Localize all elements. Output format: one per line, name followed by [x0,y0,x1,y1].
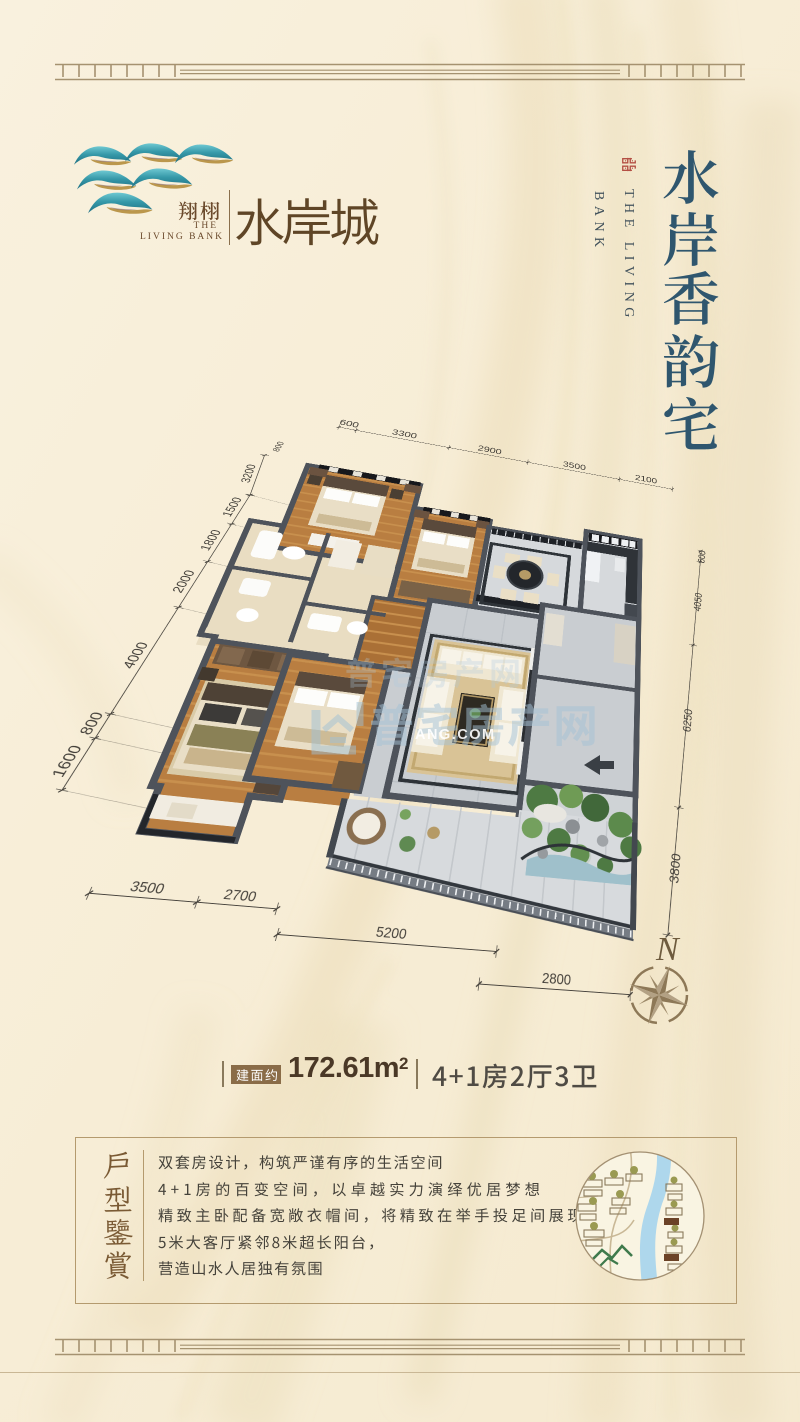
svg-text:3500: 3500 [128,878,168,897]
svg-text:4050: 4050 [692,592,705,613]
svg-text:2800: 2800 [541,969,571,988]
svg-text:6250: 6250 [681,708,696,734]
svg-text:3800: 3800 [668,852,685,885]
svg-text:5200: 5200 [374,923,408,942]
svg-text:2700: 2700 [222,886,259,905]
svg-text:N: N [655,931,681,968]
